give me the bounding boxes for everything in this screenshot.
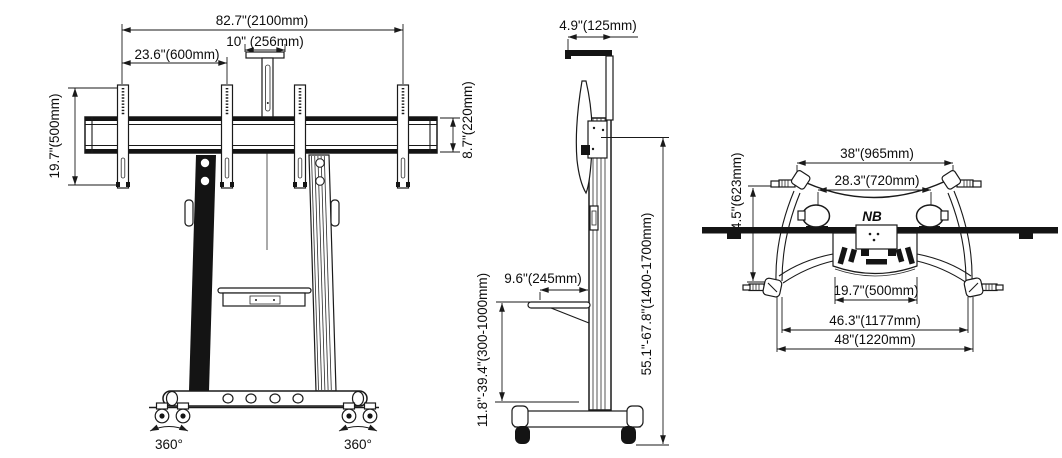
dim-handle-span: 38"(965mm): [797, 146, 953, 176]
dim-bracket-offset-label: 23.6"(600mm): [134, 47, 219, 62]
dim-beam-depth-label: 8.7"(220mm): [460, 81, 475, 159]
caster-wheel: [342, 403, 356, 423]
base-hole: [293, 394, 303, 403]
left-handle: [185, 200, 193, 226]
dim-shelf-width-label: 19.7"(500mm): [833, 283, 918, 298]
dim-center-mount-width-label: 10" (256mm): [226, 34, 304, 49]
dim-top-mount-depth: 4.9"(125mm): [559, 18, 638, 50]
dim-center-mount-width: 10" (256mm): [226, 34, 304, 50]
dim-caster-span: 46.3"(1177mm): [782, 297, 968, 333]
dim-overall-width: 82.7"(2100mm): [122, 13, 403, 30]
column-latch: [590, 206, 598, 230]
base-hole: [246, 394, 256, 403]
tv-bracket: [116, 85, 130, 188]
side-caster-front: [515, 426, 530, 444]
base-hole: [270, 394, 280, 403]
front-shelf: [218, 288, 311, 306]
side-base: [512, 406, 643, 444]
top-caster-bottom-left: [743, 278, 782, 298]
right-leg-hole: [316, 159, 324, 167]
caster-rotation-right: 360°: [339, 427, 377, 453]
side-caster-rear: [621, 426, 636, 444]
caster-wheel: [176, 403, 190, 423]
dim-shelf-depth-label: 9.6"(245mm): [504, 271, 582, 286]
side-column: [589, 118, 611, 410]
dim-beam-depth: 8.7"(220mm): [453, 81, 475, 159]
left-leg-hole: [201, 159, 209, 167]
front-view: 82.7"(2100mm) 10" (256mm) 23.6"(600mm) 1…: [47, 13, 475, 452]
top-view: 38"(965mm) 28.3"(720mm) 24.5"(623mm): [702, 146, 1058, 352]
cart-legs: [185, 155, 339, 391]
center-mount-column: [262, 58, 273, 118]
dimensional-drawing: 82.7"(2100mm) 10" (256mm) 23.6"(600mm) 1…: [0, 0, 1062, 458]
right-leg-hole: [316, 177, 324, 185]
caster-rotation-right-label: 360°: [344, 437, 372, 452]
dim-shelf-height-range-label: 11.8"-39.4"(300-1000mm): [475, 273, 490, 427]
dim-shelf-height-range: 11.8"-39.4"(300-1000mm): [475, 273, 579, 427]
dim-shelf-width: 19.7"(500mm): [833, 277, 918, 304]
mounting-beam: [85, 117, 437, 153]
top-caster-top-left: [771, 169, 811, 190]
caster-wheel: [363, 403, 377, 423]
top-knob-right: [917, 205, 949, 230]
base-hole: [223, 394, 233, 403]
dim-overall-height-range-label: 55.1"-67.8"(1400-1700mm): [639, 213, 654, 376]
dim-overall-width-label: 82.7"(2100mm): [216, 13, 309, 28]
dim-depth-label: 24.5"(623mm): [729, 152, 744, 237]
drawing-canvas: 82.7"(2100mm) 10" (256mm) 23.6"(600mm) 1…: [0, 0, 1062, 458]
tv-bracket: [293, 85, 307, 188]
caster-wheel: [155, 403, 169, 423]
side-view: 4.9"(125mm): [475, 18, 669, 445]
dim-caster-span-label: 46.3"(1177mm): [829, 313, 921, 328]
caster-rotation-left-label: 360°: [155, 437, 183, 452]
caster-rotation-left: 360°: [150, 427, 188, 453]
top-knob-left: [798, 205, 830, 230]
left-leg: [189, 155, 216, 391]
side-shelf: [528, 302, 590, 323]
dim-inner-span: 28.3"(720mm): [818, 173, 931, 207]
dim-top-overall-width-label: 48"(1220mm): [834, 332, 915, 347]
dim-bracket-height-label: 19.7"(500mm): [47, 93, 62, 178]
top-caster-top-right: [941, 169, 981, 190]
left-leg-hole: [201, 177, 209, 185]
right-handle: [331, 200, 339, 226]
dim-depth: 24.5"(623mm): [729, 152, 781, 282]
tv-bracket: [396, 85, 410, 188]
dim-bracket-height: 19.7"(500mm): [47, 88, 75, 185]
dim-inner-span-label: 28.3"(720mm): [834, 173, 919, 188]
dim-handle-span-label: 38"(965mm): [840, 146, 914, 161]
center-mount-top-bar: [246, 52, 284, 58]
brand-logo: NB: [862, 209, 882, 224]
dim-shelf-depth: 9.6"(245mm): [504, 271, 588, 300]
top-caster-bottom-right: [964, 277, 1003, 297]
dim-bracket-offset: 23.6"(600mm): [122, 47, 227, 63]
dim-top-mount-depth-label: 4.9"(125mm): [559, 18, 637, 33]
tv-bracket: [220, 85, 234, 188]
